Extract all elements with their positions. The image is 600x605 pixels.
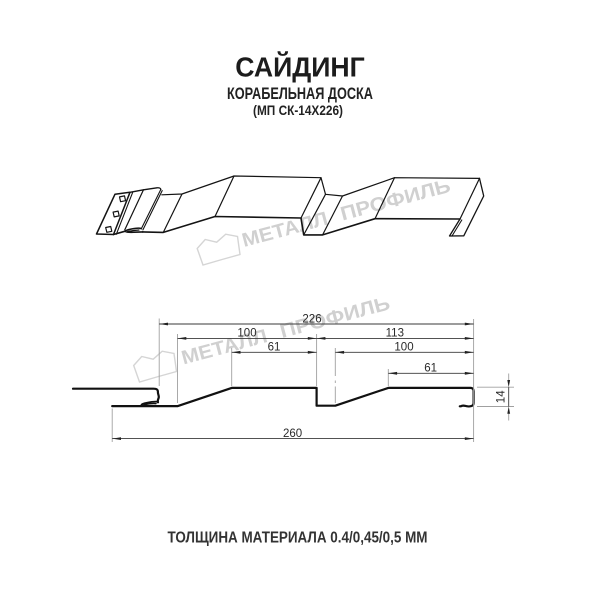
svg-text:226: 226: [302, 313, 321, 325]
svg-text:(МП СК-14Х226): (МП СК-14Х226): [253, 103, 343, 118]
svg-text:113: 113: [386, 328, 404, 340]
svg-text:61: 61: [268, 342, 281, 354]
svg-text:КОРАБЕЛЬНАЯ ДОСКА: КОРАБЕЛЬНАЯ ДОСКА: [227, 85, 373, 103]
svg-text:САЙДИНГ: САЙДИНГ: [235, 51, 365, 83]
svg-text:61: 61: [424, 363, 437, 375]
svg-text:14: 14: [496, 390, 508, 403]
svg-text:ТОЛЩИНА МАТЕРИАЛА 0.4/0,45/0,5: ТОЛЩИНА МАТЕРИАЛА 0.4/0,45/0,5 ММ: [168, 529, 428, 546]
svg-text:260: 260: [283, 428, 302, 440]
svg-text:100: 100: [237, 328, 256, 340]
svg-text:100: 100: [394, 342, 413, 354]
